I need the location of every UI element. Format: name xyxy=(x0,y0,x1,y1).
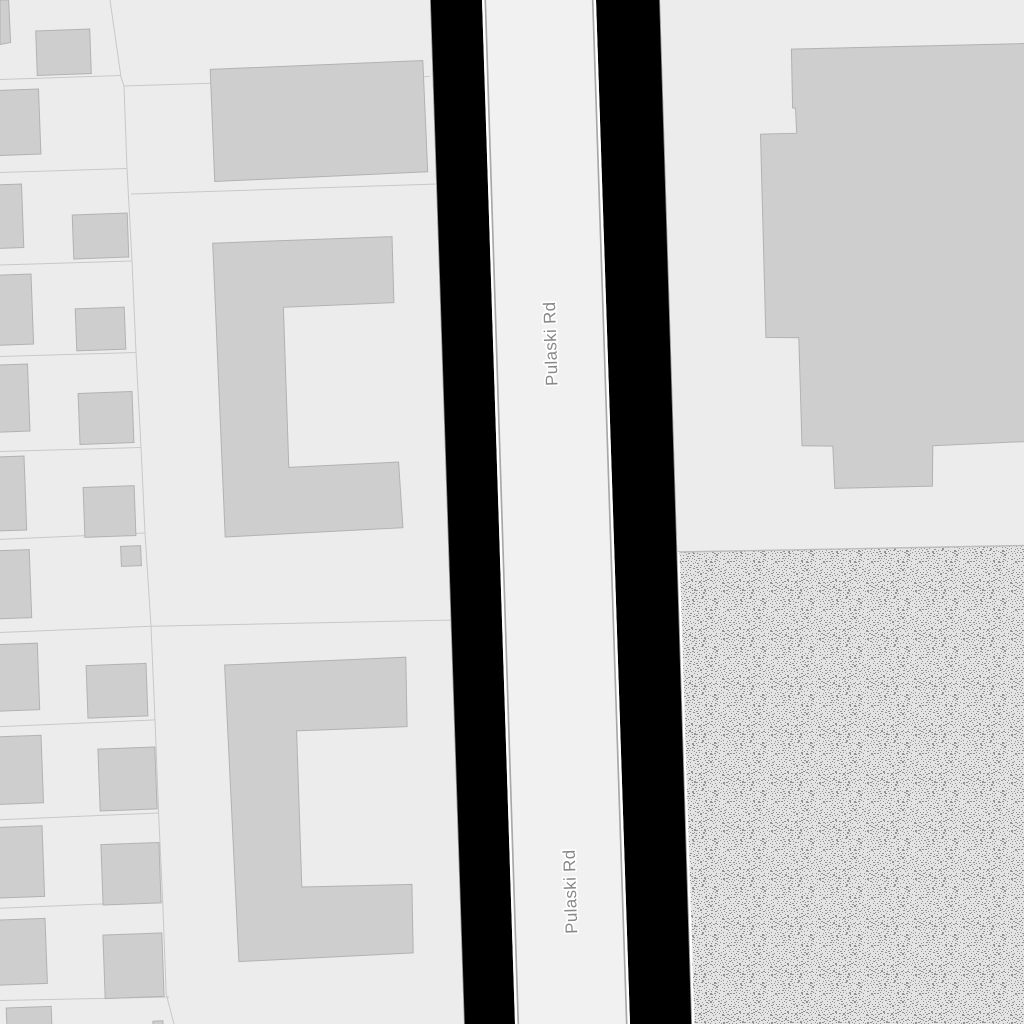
svg-text:Pulaski Rd: Pulaski Rd xyxy=(560,849,582,934)
svg-text:Pulaski Rd: Pulaski Rd xyxy=(540,301,562,386)
